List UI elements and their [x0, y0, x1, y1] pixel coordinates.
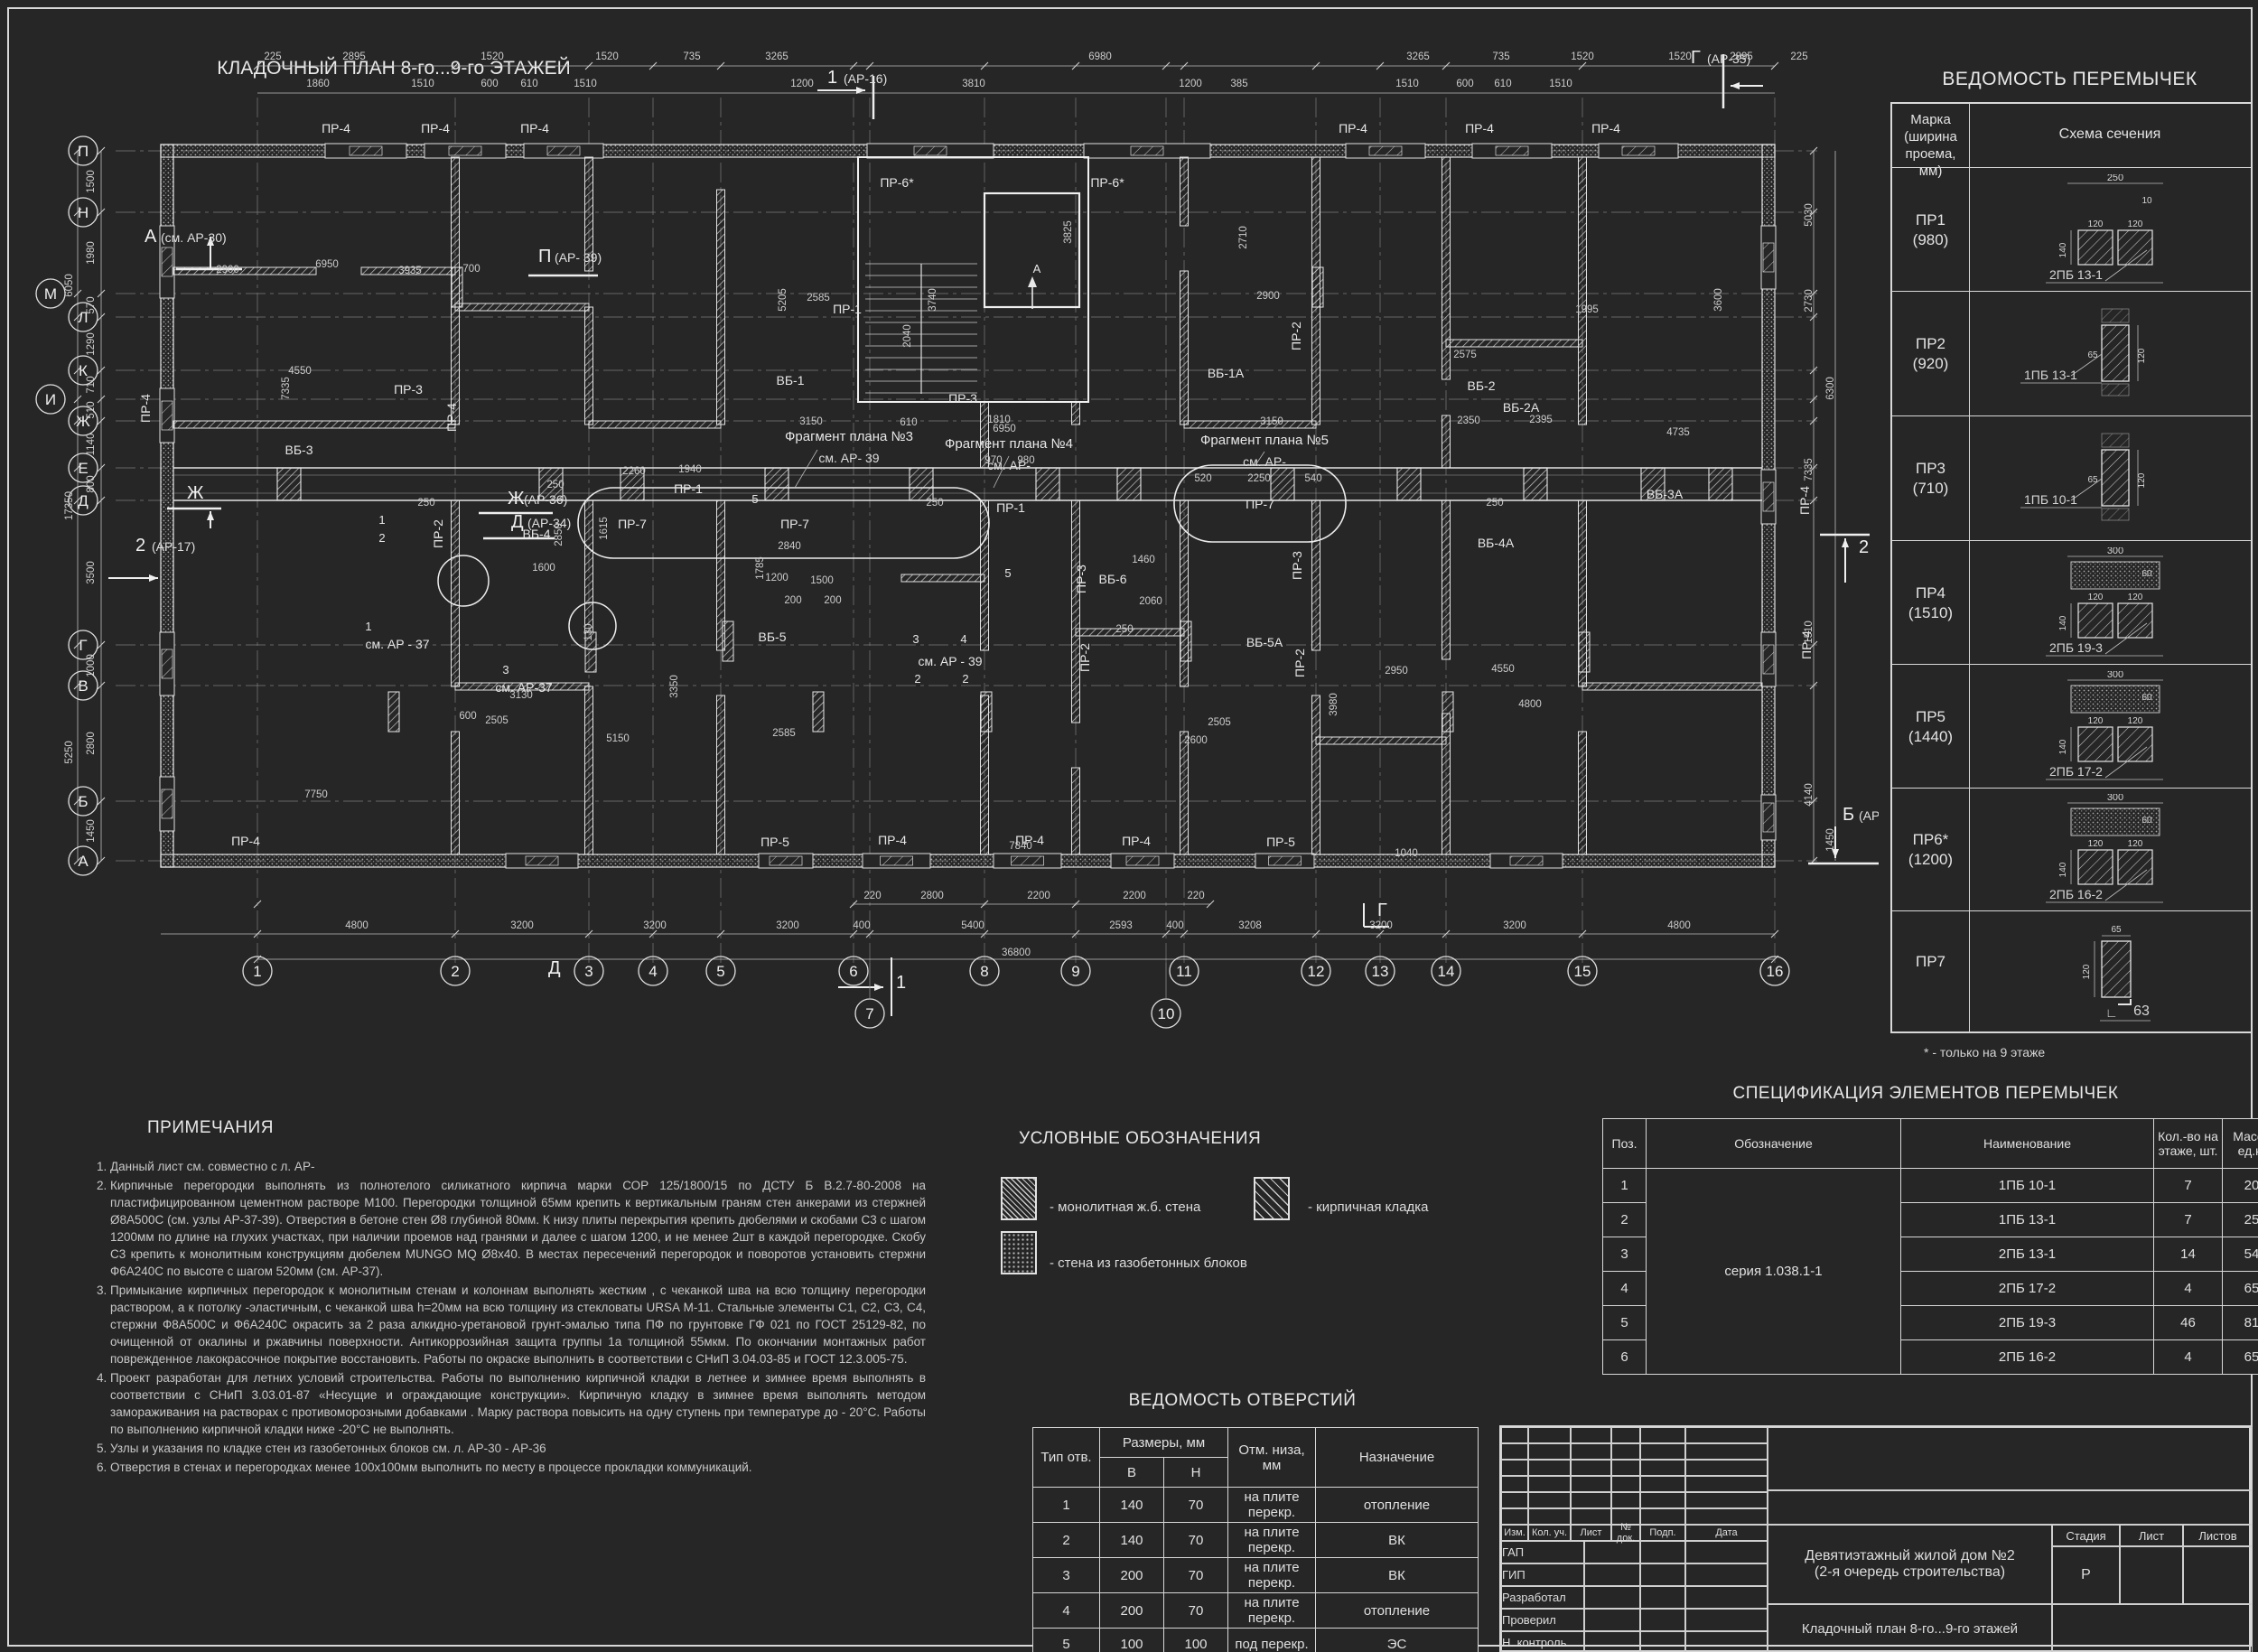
project-name: Девятиэтажный жилой дом №2(2-я очередь с… [1768, 1525, 2052, 1604]
dim-text: 1995 [1575, 304, 1599, 315]
staff-role: Разработал [1501, 1586, 1584, 1609]
staff-sign [1640, 1586, 1685, 1609]
svg-text:1ПБ 10-1: 1ПБ 10-1 [2024, 492, 2077, 507]
dim-text: 735 [1492, 51, 1509, 62]
dim-text: 600 [481, 79, 498, 89]
staff-sign [1640, 1541, 1685, 1563]
dim-text: 17350 [64, 491, 75, 520]
dim-text: 4800 [1518, 699, 1542, 710]
sheet-label: Лист [2120, 1525, 2183, 1546]
rev-grid-cell [1611, 1476, 1640, 1492]
rev-grid-cell [1501, 1443, 1528, 1460]
plan-label: 5 [1004, 566, 1011, 580]
staff-date [1685, 1631, 1768, 1652]
dim-text: 4800 [345, 920, 369, 931]
rev-grid-cell [1685, 1492, 1768, 1508]
dim-text: 7840 [1009, 841, 1032, 852]
rev-grid-cell [1501, 1427, 1528, 1443]
axis-col-label: 5 [716, 963, 724, 980]
dim-text: 3200 [776, 920, 799, 931]
staff-role: ГИП [1501, 1563, 1584, 1586]
section-marker: 1 [896, 973, 906, 993]
plan-label: 4 [960, 632, 966, 646]
dim-text: 600 [1456, 79, 1473, 89]
dim-text: 540 [1304, 473, 1321, 484]
dim-text: 385 [1230, 79, 1247, 89]
sheets-label: Листов [2183, 1525, 2253, 1546]
plan-label: см. АР - 39 [918, 654, 982, 668]
legend-swatch-block [1001, 1231, 1037, 1274]
lintel-mark: ПР7 [1892, 952, 1969, 972]
lintel-section-diagram: 300601201201402ПБ 19-3 [1970, 547, 2250, 665]
rev-grid-cell [1528, 1427, 1571, 1443]
sheet-value [2120, 1546, 2183, 1604]
staff-sign [1640, 1609, 1685, 1631]
plan-label: 2 [914, 672, 920, 686]
svg-text:120: 120 [2137, 472, 2147, 488]
notes-list: Данный лист см. совместно с л. АР-Кирпич… [90, 1158, 926, 1478]
section-marker: 2 [1859, 537, 1869, 557]
axis-row-label: Г [79, 637, 87, 654]
dim-text: 1140 [86, 434, 97, 456]
dim-text: 1040 [1395, 848, 1418, 859]
lintel-mark: ПР2(920) [1892, 334, 1969, 374]
project-line1: Девятиэтажный жилой дом №2(2-я очередь с… [1805, 1548, 2014, 1581]
axis-col-label: 9 [1071, 963, 1079, 980]
dim-text: 3500 [86, 561, 97, 584]
plan-label: ПР-3 [1290, 551, 1304, 580]
plan-label: ПР-2 [1292, 649, 1307, 677]
holes-header: В [1100, 1458, 1164, 1488]
lintel-section-diagram: 65120∟63 [1970, 916, 2250, 1033]
staff-sign [1584, 1609, 1640, 1631]
section-marker-ref: (АР-36) [524, 492, 567, 507]
axis-col-label: 11 [1176, 963, 1192, 980]
dim-text: 220 [1187, 891, 1204, 901]
dim-text: 7335 [281, 377, 292, 400]
dim-text: 2200 [1123, 891, 1146, 901]
plan-label: ПР-1 [833, 302, 862, 316]
detail-circle [438, 555, 489, 606]
plan-label: ПР-4 [421, 121, 450, 135]
dim-text: 735 [683, 51, 700, 62]
axis-col-label: 1 [253, 963, 261, 980]
dim-text: 400 [1166, 920, 1183, 931]
dim-text: 2593 [1109, 920, 1133, 931]
rev-grid-cell [1640, 1443, 1685, 1460]
dim-text: 250 [546, 480, 564, 490]
dim-text: 5030 [1804, 203, 1815, 227]
notes-title: ПРИМЕЧАНИЯ [147, 1118, 274, 1138]
axis-row-label: Д [78, 492, 89, 509]
rev-grid-cell [1640, 1492, 1685, 1508]
axis-col-label: 16 [1767, 963, 1784, 980]
dim-text: 1460 [1132, 555, 1155, 565]
dim-text: 1940 [678, 464, 702, 475]
rev-grid-cell [1685, 1427, 1768, 1443]
lintel-mark: ПР3(710) [1892, 459, 1969, 499]
rev-grid-cell [1685, 1443, 1768, 1460]
plan-label: ПР-4 [1465, 121, 1494, 135]
holes-row: 114070на плите перекр.отопление [1033, 1488, 1479, 1523]
dim-text: 2730 [1804, 289, 1815, 313]
dim-text: 6950 [993, 424, 1016, 434]
spec-header-row: Поз.ОбозначениеНаименованиеКол.-во на эт… [1603, 1119, 2258, 1169]
dim-text: 1500 [86, 170, 97, 193]
holes-header: Назначение [1316, 1428, 1479, 1488]
dim-text: 4550 [1491, 664, 1515, 675]
rev-header: Дата [1685, 1525, 1768, 1541]
staff-sign [1584, 1541, 1640, 1563]
svg-text:120: 120 [2128, 716, 2143, 726]
plan-label: ПР-7 [618, 517, 647, 531]
dim-text: 250 [1115, 624, 1133, 635]
plan-label: ПР-2 [431, 519, 445, 548]
dim-text: 510 [86, 401, 97, 418]
svg-text:120: 120 [2088, 839, 2104, 849]
svg-text:65: 65 [2111, 925, 2122, 935]
dim-text: 2260 [622, 466, 646, 477]
dim-text: 610 [1494, 79, 1511, 89]
lintel-section-diagram: 300601201201402ПБ 16-2 [1970, 794, 2250, 911]
axis-col-label: 15 [1574, 963, 1591, 980]
rev-grid-cell [1528, 1443, 1571, 1460]
svg-text:60: 60 [2141, 569, 2152, 579]
plan-label: ПР-5 [760, 835, 789, 849]
note-item: Проект разработан для летних условий стр… [110, 1369, 926, 1438]
svg-text:2ПБ 19-3: 2ПБ 19-3 [2049, 640, 2103, 655]
dim-text: 800 [86, 475, 97, 492]
dim-text: 1510 [411, 79, 434, 89]
note-item: Данный лист см. совместно с л. АР- [110, 1158, 926, 1175]
note-item: Отверстия в стенах и перегородках менее … [110, 1459, 926, 1476]
plan-label: ВБ-4 [523, 527, 551, 541]
svg-text:120: 120 [2088, 593, 2104, 602]
holes-title: ВЕДОМОСТЬ ОТВЕРСТИЙ [1032, 1391, 1452, 1411]
section-marker: Б [1843, 805, 1854, 825]
plan-label: ВБ-4А [1478, 536, 1515, 550]
dim-text: 3200 [510, 920, 534, 931]
dim-text: 2710 [1238, 226, 1249, 249]
holes-row: 214070на плите перекр.ВК [1033, 1523, 1479, 1558]
note-item: Примыкание кирпичных перегородок к монол… [110, 1282, 926, 1367]
dim-text: 36800 [1002, 947, 1031, 958]
plan-label: ПР-7 [780, 517, 809, 531]
dim-text: 3935 [398, 266, 422, 276]
fragment-ref: см. АР- 39 [818, 451, 879, 465]
svg-text:120: 120 [2082, 964, 2092, 979]
svg-text:300: 300 [2107, 547, 2123, 556]
masonry-plan: КЛАДОЧНЫЙ ПЛАН 8-го...9-го ЭТАЖЕЙПНМЛКИЖ… [0, 0, 1879, 1084]
rev-grid-cell [1685, 1508, 1768, 1525]
plan-label: ПР-4 [138, 394, 153, 423]
axis-col-label: 14 [1438, 963, 1455, 980]
staff-date [1685, 1541, 1768, 1563]
rev-grid-cell [1501, 1476, 1528, 1492]
axis-row-label: Е [78, 460, 88, 477]
dim-text: 3265 [765, 51, 788, 62]
rev-grid-cell [1501, 1508, 1528, 1525]
dim-text: 600 [459, 711, 476, 722]
dim-text: 1450 [1825, 828, 1836, 852]
svg-text:140: 140 [2058, 242, 2068, 257]
plan-label: ПР-2 [1289, 322, 1303, 350]
legend-swatch-mono [1001, 1177, 1037, 1220]
holes-header-row: Тип отв. Размеры, мм Отм. низа, мм Назна… [1033, 1428, 1479, 1458]
section-marker-ref: (АР- 39) [555, 250, 602, 265]
dim-text: 5150 [606, 733, 630, 744]
spec-designation: серия 1.038.1-1 [1647, 1169, 1901, 1375]
lintel-section-diagram: 300601201201402ПБ 17-2 [1970, 671, 2250, 789]
dim-text: 225 [1790, 51, 1807, 62]
lintel-row: ПР765120∟63 [1892, 910, 2251, 1031]
dim-text: 710 [86, 376, 97, 393]
legend-label: - монолитная ж.б. стена [1050, 1199, 1200, 1215]
plan-label: ПР-4 [444, 403, 459, 432]
plan-label: ПР-1 [996, 500, 1025, 515]
svg-text:120: 120 [2088, 219, 2104, 229]
rev-header: № док. [1611, 1525, 1640, 1541]
rev-grid-cell [1571, 1427, 1611, 1443]
svg-text:120: 120 [2128, 219, 2143, 229]
section-marker: Д [548, 958, 561, 978]
lintel-mark: ПР5(1440) [1892, 707, 1969, 747]
rev-grid-cell [1611, 1460, 1640, 1476]
holes-row: 5100100под перекр.ЭС [1033, 1629, 1479, 1652]
plan-label: ПР-6* [1090, 175, 1124, 190]
lintel-section-diagram: 250101201201402ПБ 13-1 [1970, 174, 2250, 292]
tb-empty-mid [1768, 1490, 2253, 1525]
plan-label: 2 [962, 672, 968, 686]
rev-grid-cell [1528, 1508, 1571, 1525]
axis-col-label: 7 [865, 1005, 873, 1022]
dim-text: 2840 [778, 541, 801, 552]
dim-text: 1500 [810, 575, 834, 586]
note-item: Узлы и указания по кладке стен из газобе… [110, 1440, 926, 1457]
dim-text: 2800 [86, 732, 97, 755]
plan-label: 1 [365, 620, 371, 633]
dim-text: 2200 [1027, 891, 1050, 901]
staff-role: Н. контроль [1501, 1631, 1584, 1652]
rev-grid-cell [1611, 1427, 1640, 1443]
dim-text: 3265 [1406, 51, 1430, 62]
lintel-mark: ПР6*(1200) [1892, 830, 1969, 870]
svg-text:2ПБ 17-2: 2ПБ 17-2 [2049, 764, 2103, 779]
staff-sign [1640, 1563, 1685, 1586]
section-marker: Г [1691, 48, 1701, 68]
section-marker: Ж [187, 483, 204, 503]
dim-text: 3740 [928, 288, 938, 312]
plan-label: ПР-3 [394, 382, 423, 397]
plan-label: ПР-1 [674, 481, 703, 496]
section-marker-ref: (см. АР-30) [161, 230, 227, 245]
lintel-footnote: * - только на 9 этаже [1924, 1045, 2045, 1059]
rev-grid-cell [1685, 1476, 1768, 1492]
dim-text: 3350 [669, 675, 680, 698]
plan-label: 5 [751, 492, 758, 506]
holes-table: Тип отв. Размеры, мм Отм. низа, мм Назна… [1032, 1427, 1479, 1652]
dim-text: 5400 [961, 920, 984, 931]
plan-label: ПР-4 [1591, 121, 1620, 135]
svg-text:1ПБ 13-1: 1ПБ 13-1 [2024, 368, 2077, 382]
tb-empty-br [2052, 1604, 2253, 1652]
dim-text: 6980 [1088, 51, 1112, 62]
dim-text: 3208 [1238, 920, 1262, 931]
rev-grid-cell [1640, 1476, 1685, 1492]
section-marker: 1 [827, 68, 837, 88]
dim-text: 7335 [1804, 458, 1815, 481]
plan-label: ВБ-2А [1503, 400, 1540, 415]
plan-label: ПР-4 [520, 121, 549, 135]
rev-grid-cell [1571, 1443, 1611, 1460]
doc-title: Кладочный план 8-го...9-го этажей [1768, 1604, 2052, 1652]
dim-text: 4735 [1666, 427, 1690, 438]
title-block: Изм.Кол. уч.Лист№ док.Подп.ДатаГАПГИПРаз… [1499, 1425, 2251, 1652]
dim-text: 2505 [1208, 717, 1231, 728]
section-marker-ref: (АР-17) [152, 539, 195, 554]
holes-header: Размеры, мм [1100, 1428, 1228, 1458]
dim-text: 1520 [481, 51, 504, 62]
spec-title: СПЕЦИФИКАЦИЯ ЭЛЕМЕНТОВ ПЕРЕМЫЧЕК [1602, 1084, 2249, 1104]
dim-text: 970 [984, 455, 1002, 466]
svg-text:140: 140 [2058, 862, 2068, 877]
dim-text: 250 [417, 498, 434, 509]
dim-text: 2505 [485, 715, 509, 726]
rev-header: Изм. [1501, 1525, 1528, 1541]
rev-grid-cell [1571, 1476, 1611, 1492]
dim-text: 4800 [1667, 920, 1691, 931]
rev-grid-cell [1640, 1427, 1685, 1443]
svg-text:120: 120 [2128, 593, 2143, 602]
svg-text:120: 120 [2137, 348, 2147, 363]
stage-value: Р [2052, 1546, 2120, 1604]
staff-sign [1584, 1631, 1640, 1652]
dim-text: 1520 [1668, 51, 1692, 62]
dim-text: 3980 [1329, 693, 1339, 716]
lintel-row: ПР2(920)651201ПБ 13-1 [1892, 291, 2251, 415]
svg-text:140: 140 [2058, 615, 2068, 630]
section-marker: А [145, 227, 157, 247]
rev-grid-cell [1528, 1492, 1571, 1508]
dim-text: 3150 [799, 416, 823, 427]
rev-header: Кол. уч. [1528, 1525, 1571, 1541]
rev-grid-cell [1685, 1460, 1768, 1476]
rev-header: Лист [1571, 1525, 1611, 1541]
axis-row-label: Б [78, 793, 88, 810]
rev-header: Подп. [1640, 1525, 1685, 1541]
staff-date [1685, 1563, 1768, 1586]
svg-text:∟: ∟ [2105, 1005, 2118, 1020]
lintel-row: ПР5(1440)300601201201402ПБ 17-2 [1892, 664, 2251, 788]
dim-text: 2250 [1247, 473, 1271, 484]
plan-label: ВБ-1 [777, 373, 805, 387]
plan-label: ПР-4 [1339, 121, 1367, 135]
dim-text: 980 [1017, 455, 1034, 466]
dim-text: 2585 [807, 293, 830, 303]
dim-text: 1615 [599, 517, 610, 540]
section-marker-ref: (АР-33) [1859, 808, 1879, 823]
rev-grid-cell [1501, 1492, 1528, 1508]
plan-label: ПР-4 [231, 834, 260, 848]
axis-row-label: И [45, 391, 56, 408]
axis-col-label: 3 [584, 963, 592, 980]
staff-date [1685, 1586, 1768, 1609]
dim-text: 7750 [304, 789, 328, 800]
plan-label: ВБ-2 [1468, 378, 1496, 393]
section-marker-ref: (АР-16) [844, 71, 887, 86]
svg-text:65: 65 [2087, 475, 2098, 485]
dim-text: 2060 [1139, 596, 1162, 607]
axis-col-label: 2 [451, 963, 459, 980]
holes-header: Тип отв. [1033, 1428, 1100, 1488]
dim-text: 3150 [1260, 416, 1283, 427]
note-item: Кирпичные перегородки выполнять из полно… [110, 1177, 926, 1280]
dim-text: 1600 [532, 563, 555, 574]
dim-text: 5205 [778, 288, 788, 312]
lintel-col2-header: Схема сечения [1970, 126, 2250, 143]
dim-text: 3200 [1503, 920, 1526, 931]
plan-label: ВБ-3 [285, 443, 313, 457]
svg-text:2ПБ 13-1: 2ПБ 13-1 [2049, 267, 2103, 282]
dim-text: 1200 [765, 573, 788, 583]
legend-swatch-brick [1254, 1177, 1290, 1220]
dim-text: 2395 [1529, 415, 1553, 425]
tb-empty-top [1768, 1427, 2253, 1490]
legend-label: - стена из газобетонных блоков [1050, 1255, 1247, 1271]
svg-text:65: 65 [2087, 350, 2098, 360]
section-marker: Г [1377, 901, 1387, 920]
lintel-mark: ПР4(1510) [1892, 583, 1969, 623]
svg-text:120: 120 [2088, 716, 2104, 726]
lintel-section-diagram: 651201ПБ 13-1 [1970, 298, 2250, 415]
axis-col-label: 6 [849, 963, 857, 980]
axis-col-label: 12 [1308, 963, 1325, 980]
section-marker: П [538, 247, 551, 266]
svg-text:300: 300 [2107, 794, 2123, 803]
dim-text: 2900 [1256, 291, 1280, 302]
rev-grid-cell [1571, 1508, 1611, 1525]
dim-text: 130 [583, 623, 594, 640]
plan-label: ПР-4 [878, 833, 907, 847]
rev-grid-cell [1571, 1460, 1611, 1476]
svg-text:250: 250 [2107, 174, 2123, 183]
dim-text: 2600 [1184, 735, 1208, 746]
dim-text: 4140 [1804, 783, 1815, 807]
dim-text: 200 [784, 595, 801, 606]
rev-grid-cell [1528, 1476, 1571, 1492]
dim-text: 6050 [64, 274, 75, 297]
axis-col-label: 8 [980, 963, 988, 980]
lintel-row: ПР1(980)250101201201402ПБ 13-1 [1892, 167, 2251, 291]
spec-header: Поз. [1603, 1119, 1647, 1169]
dim-text: 610 [520, 79, 537, 89]
staff-date [1685, 1609, 1768, 1631]
dim-text: 200 [824, 595, 841, 606]
fragment-ref: см. АР- [1243, 454, 1286, 469]
plan-label: 1 [378, 513, 385, 527]
axis-row-label: Н [78, 204, 89, 221]
plan-label: ВБ-6 [1099, 572, 1127, 586]
fragment-label: Фрагмент плана №4 [945, 436, 1073, 452]
dim-text: 3600 [1713, 288, 1724, 312]
lintel-row: ПР6*(1200)300601201201402ПБ 16-2 [1892, 788, 2251, 910]
dim-text: 6950 [315, 259, 339, 270]
svg-text:60: 60 [2141, 816, 2152, 826]
axis-row-label: М [44, 285, 57, 303]
lintel-section-diagram: 651201ПБ 10-1 [1970, 423, 2250, 540]
dim-text: 1510 [574, 79, 597, 89]
plan-label: ПР-6* [880, 175, 914, 190]
